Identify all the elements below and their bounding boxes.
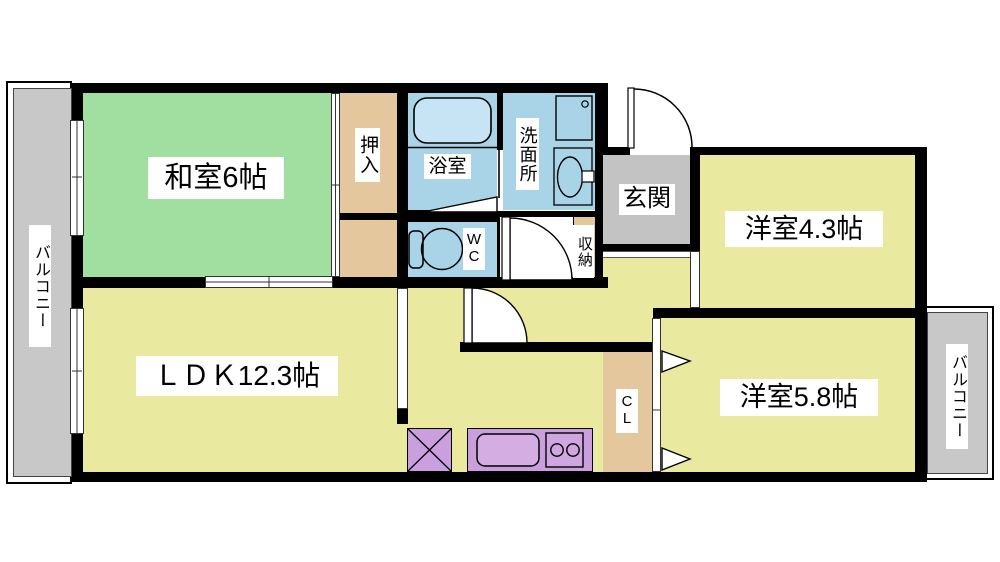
closet-cl-door-track	[652, 318, 661, 472]
wall	[397, 409, 408, 424]
entrance-door-arc	[634, 89, 692, 147]
wall	[397, 93, 408, 288]
wall	[497, 217, 500, 277]
corridor-cl-front	[603, 310, 653, 342]
wall	[497, 93, 503, 150]
window-washitsu	[70, 120, 84, 236]
entrance-door-leaf	[628, 88, 634, 148]
closet-oshiire-lower	[340, 220, 397, 277]
label-bath: 浴室	[424, 154, 471, 179]
entrance-opening	[630, 147, 690, 155]
wall	[333, 213, 397, 220]
wall	[460, 342, 653, 352]
sliding-door-western-4-3	[690, 251, 700, 308]
wall	[653, 308, 915, 318]
wall	[72, 472, 927, 482]
wall	[497, 211, 603, 217]
genkan-step-edge	[602, 251, 692, 258]
label-wc: W C	[463, 228, 485, 270]
label-ldk: ＬＤＫ12.3帖	[136, 356, 338, 396]
label-balcony-right: バルコニー	[946, 344, 968, 449]
partition-ldk-kitchen	[397, 288, 408, 409]
wall	[690, 147, 915, 155]
wall	[397, 210, 497, 222]
window-ldk	[70, 308, 84, 434]
label-western-5-8: 洋室5.8帖	[720, 379, 878, 416]
label-cl: C L	[616, 389, 638, 433]
genkan-step	[602, 244, 692, 251]
room-bath	[408, 93, 497, 210]
floor-plan: 和室6帖 ＬＤＫ12.3帖 洋室4.3帖 洋室5.8帖 玄関 浴室 洗面所 押入…	[0, 0, 1000, 562]
label-washroom: 洗面所	[516, 118, 539, 190]
label-genkan: 玄関	[619, 184, 675, 215]
wall	[690, 155, 700, 251]
wall	[598, 147, 630, 155]
label-shuno: 収納	[573, 225, 594, 278]
wall	[72, 277, 608, 288]
corridor	[603, 258, 690, 310]
wall	[72, 83, 608, 93]
label-washitsu: 和室6帖	[148, 157, 284, 199]
label-balcony-left: バルコニー	[29, 225, 51, 347]
label-western-4-3: 洋室4.3帖	[725, 211, 883, 247]
washroom-doorway	[500, 217, 573, 277]
wall	[915, 147, 927, 482]
fusuma-oshiire	[331, 93, 340, 277]
fusuma-washitsu-ldk	[205, 276, 333, 288]
wall	[595, 83, 608, 155]
label-oshiire: 押入	[355, 128, 380, 182]
kitchen-unit-x	[407, 428, 452, 472]
kitchen-counter	[467, 428, 593, 472]
